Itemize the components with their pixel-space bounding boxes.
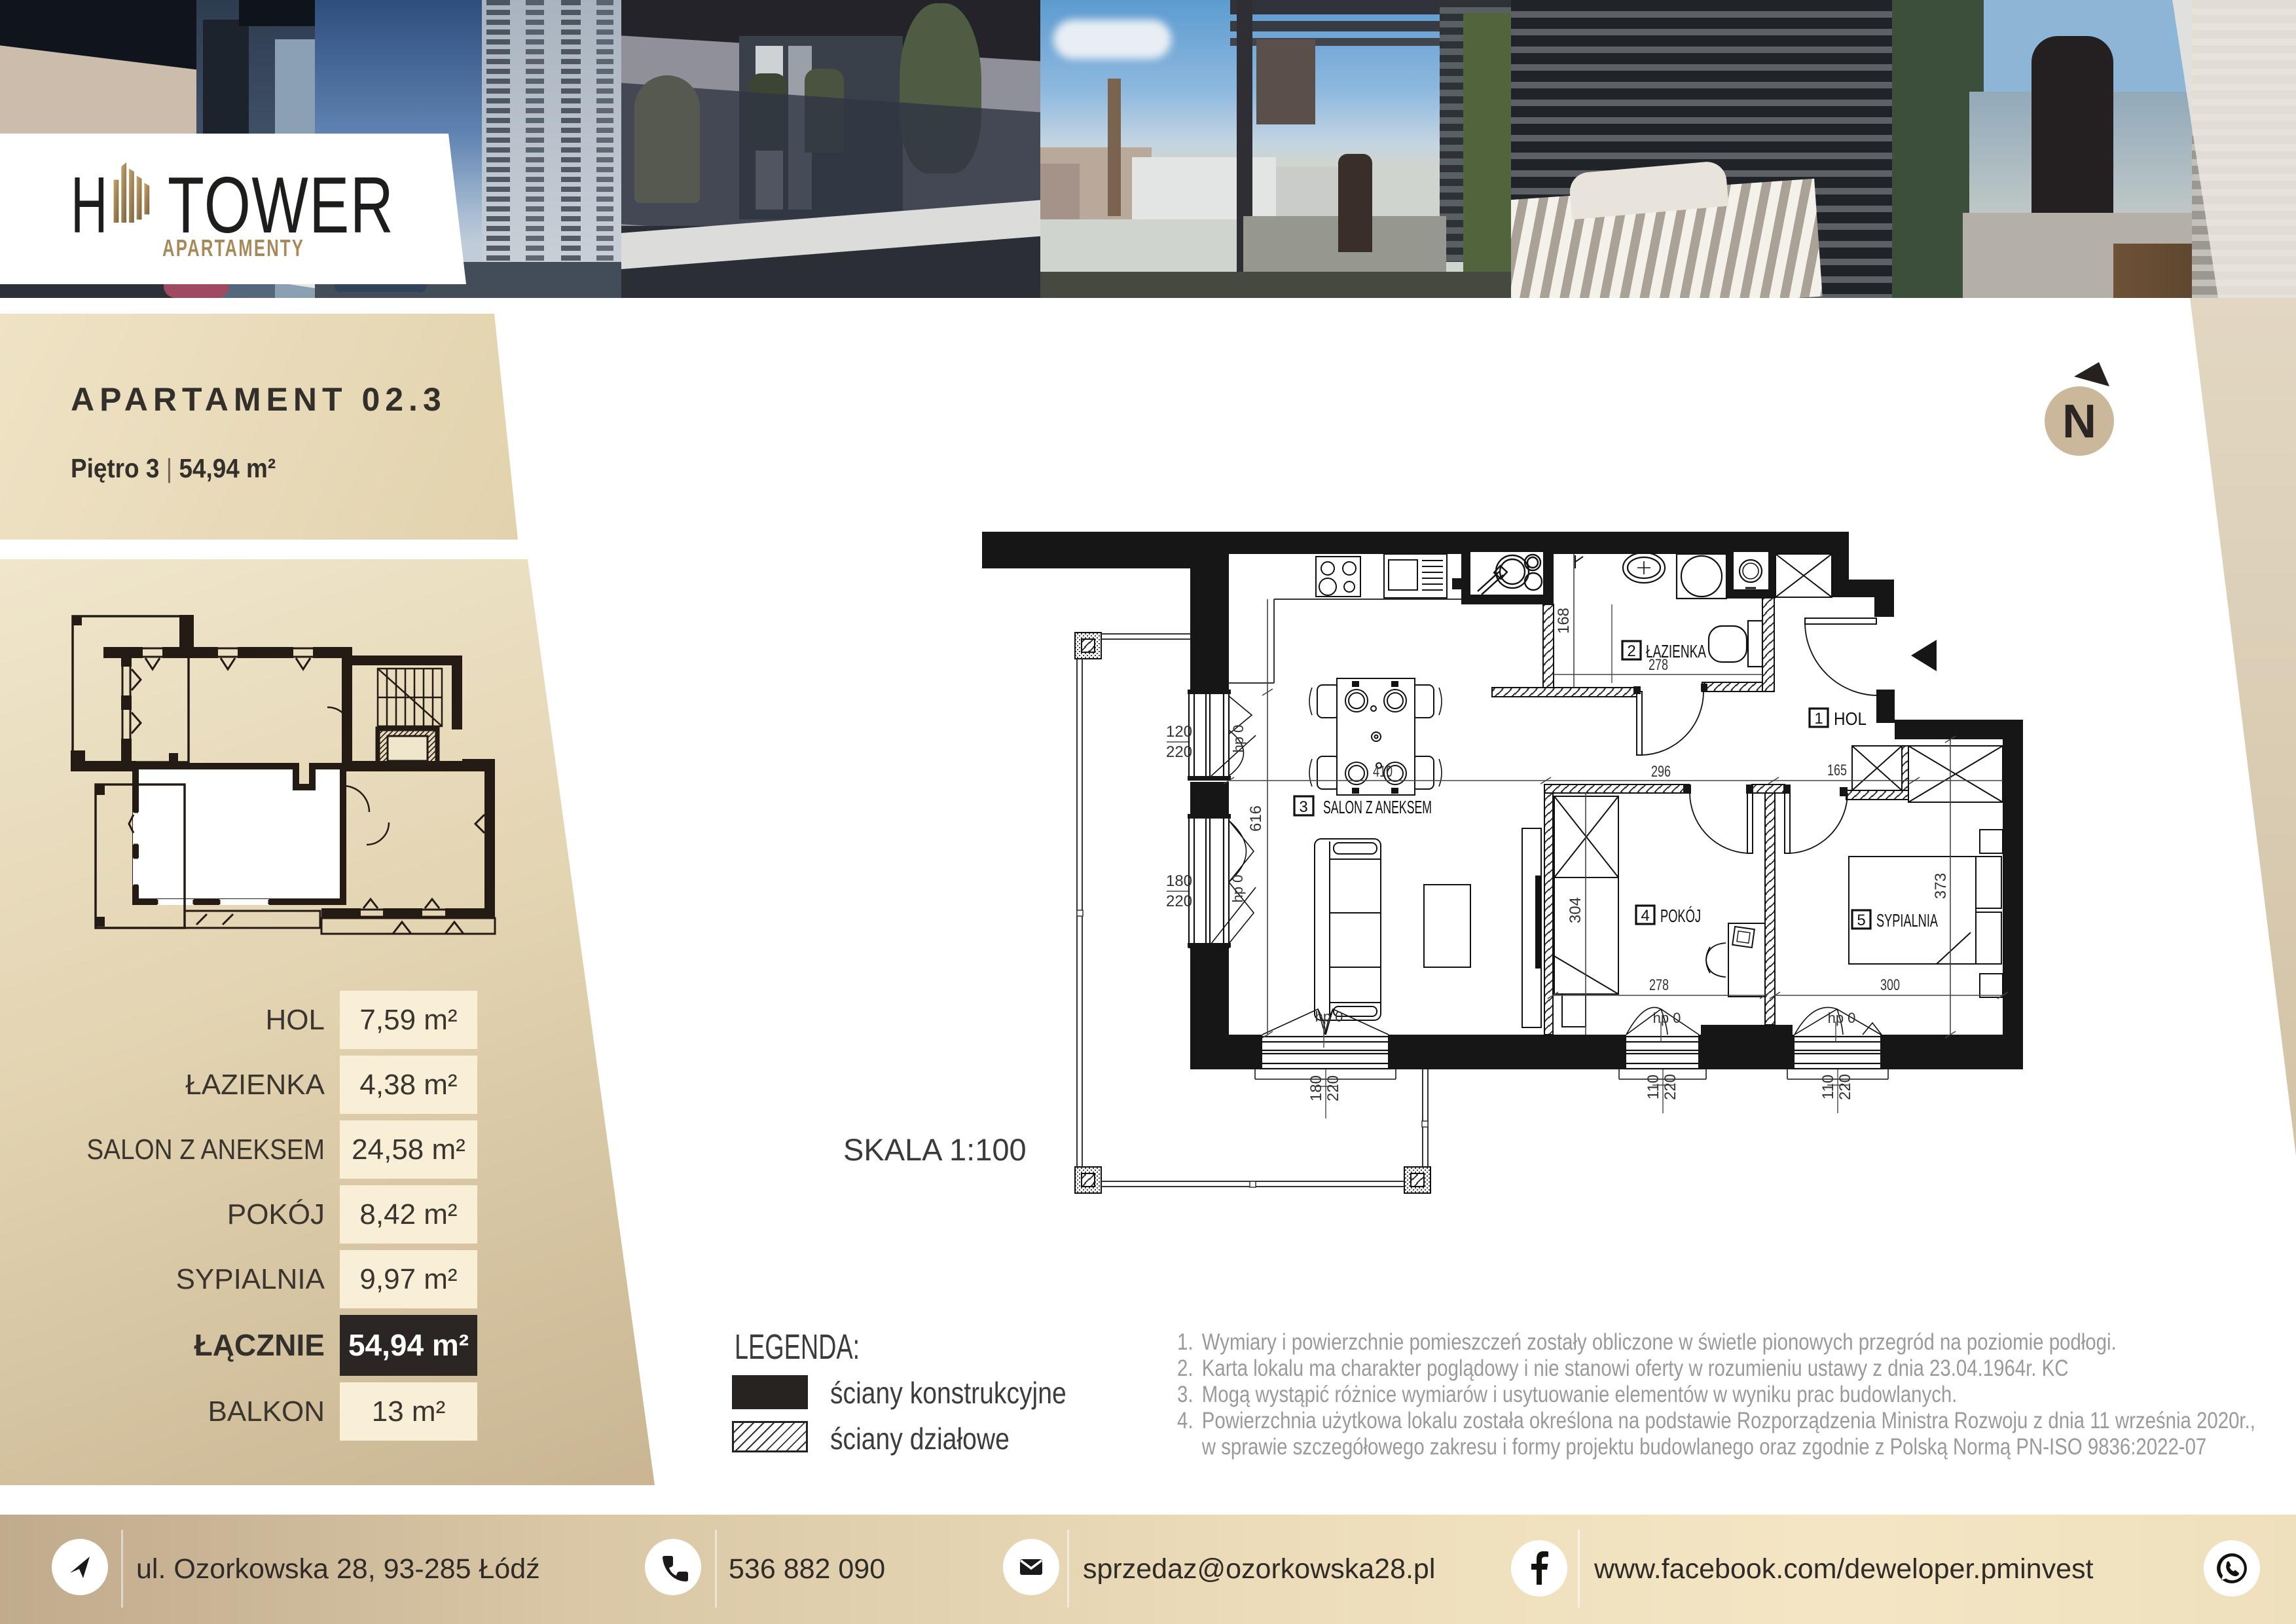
svg-text:180: 180 (1166, 872, 1192, 890)
svg-text:hp 0: hp 0 (1653, 1010, 1681, 1026)
svg-text:1: 1 (1814, 710, 1823, 728)
svg-text:5: 5 (1857, 912, 1865, 929)
svg-text:220: 220 (1662, 1074, 1679, 1100)
svg-text:304: 304 (1567, 897, 1584, 923)
svg-text:300: 300 (1880, 976, 1900, 994)
svg-text:3: 3 (1299, 798, 1307, 816)
svg-text:hp 0: hp 0 (1315, 1008, 1343, 1025)
svg-text:hp 0: hp 0 (1230, 725, 1247, 753)
svg-text:110: 110 (1819, 1075, 1837, 1099)
svg-text:SALON Z ANEKSEM: SALON Z ANEKSEM (1323, 797, 1432, 817)
svg-text:ŁAZIENKA: ŁAZIENKA (1646, 641, 1706, 661)
svg-text:278: 278 (1649, 976, 1669, 994)
svg-text:296: 296 (1651, 763, 1671, 781)
svg-text:220: 220 (1836, 1074, 1854, 1100)
svg-text:220: 220 (1166, 893, 1192, 910)
svg-text:410: 410 (1373, 763, 1393, 781)
svg-text:110: 110 (1645, 1075, 1662, 1099)
svg-text:616: 616 (1247, 805, 1265, 832)
svg-text:4: 4 (1641, 907, 1649, 925)
svg-text:N: N (2062, 396, 2096, 448)
svg-text:HOL: HOL (1834, 709, 1867, 729)
svg-text:165: 165 (1827, 762, 1847, 779)
svg-text:hp 0: hp 0 (1230, 875, 1246, 903)
svg-text:POKÓJ: POKÓJ (1660, 906, 1701, 926)
svg-text:373: 373 (1932, 873, 1950, 899)
svg-text:168: 168 (1555, 608, 1573, 634)
svg-text:220: 220 (1166, 743, 1192, 761)
svg-text:220: 220 (1324, 1075, 1342, 1101)
svg-text:2: 2 (1627, 642, 1635, 660)
svg-text:120: 120 (1166, 723, 1192, 741)
svg-text:SYPIALNIA: SYPIALNIA (1876, 910, 1938, 931)
svg-text:hp 0: hp 0 (1828, 1010, 1856, 1026)
svg-text:180: 180 (1307, 1075, 1325, 1101)
